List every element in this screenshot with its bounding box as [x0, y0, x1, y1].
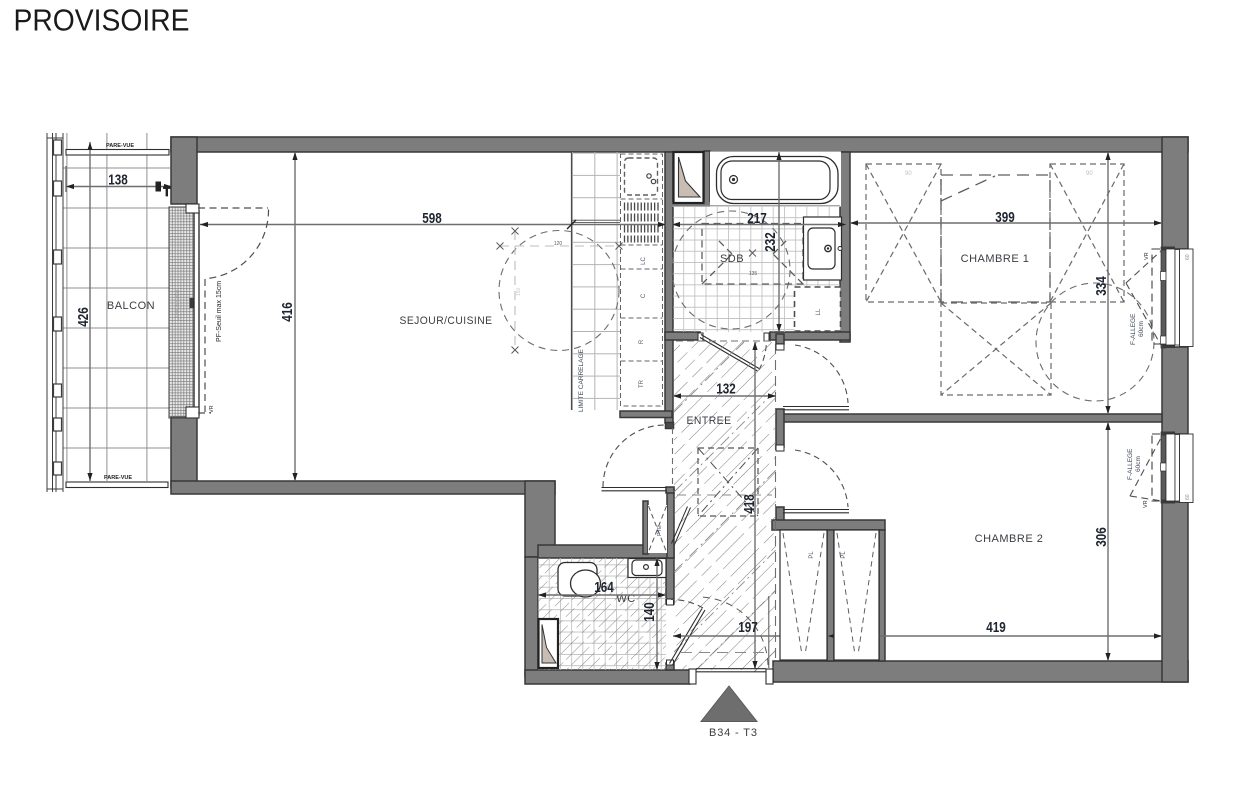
- svg-text:419: 419: [986, 620, 1006, 636]
- svg-text:SDB: SDB: [720, 253, 744, 265]
- svg-text:60: 60: [1185, 254, 1191, 260]
- svg-text:60cm: 60cm: [1138, 321, 1145, 337]
- svg-text:PARE-VUE: PARE-VUE: [106, 143, 134, 149]
- svg-text:90: 90: [1086, 171, 1093, 177]
- svg-text:C: C: [641, 293, 647, 298]
- svg-text:CHAMBRE 1: CHAMBRE 1: [961, 253, 1030, 265]
- svg-text:PL: PL: [841, 551, 847, 559]
- svg-text:PROVISOIRE: PROVISOIRE: [14, 3, 190, 38]
- svg-text:SEJOUR/CUISINE: SEJOUR/CUISINE: [400, 315, 493, 327]
- svg-text:120: 120: [554, 241, 563, 247]
- svg-text:164: 164: [594, 580, 614, 596]
- svg-text:F-ALLEGE: F-ALLEGE: [1130, 313, 1137, 345]
- svg-text:90: 90: [905, 171, 912, 177]
- svg-text:VR: VR: [1143, 500, 1149, 508]
- svg-text:R: R: [639, 339, 645, 344]
- svg-text:PF-Seuil max 15cm: PF-Seuil max 15cm: [216, 281, 223, 342]
- svg-text:416: 416: [280, 302, 296, 322]
- svg-text:150: 150: [516, 287, 522, 296]
- svg-text:306: 306: [1094, 527, 1110, 547]
- svg-text:60cm: 60cm: [1135, 456, 1142, 472]
- svg-text:132: 132: [716, 382, 736, 398]
- svg-text:140: 140: [642, 602, 658, 622]
- svg-text:VR: VR: [209, 405, 215, 413]
- svg-text:LC: LC: [641, 256, 647, 264]
- svg-text:PARE-VUE: PARE-VUE: [104, 475, 132, 481]
- svg-text:418: 418: [742, 494, 758, 514]
- svg-text:334: 334: [1094, 276, 1110, 296]
- svg-text:598: 598: [422, 211, 442, 227]
- svg-text:60: 60: [1185, 494, 1191, 500]
- svg-text:PTE: PTE: [657, 525, 663, 536]
- svg-text:BALCON: BALCON: [107, 300, 155, 312]
- svg-text:VR: VR: [1144, 252, 1150, 260]
- svg-text:LL: LL: [816, 308, 822, 315]
- svg-text:232: 232: [763, 232, 779, 252]
- svg-text:PL: PL: [809, 551, 815, 559]
- svg-text:217: 217: [747, 211, 767, 227]
- svg-text:TR: TR: [639, 379, 645, 388]
- svg-text:135: 135: [749, 271, 758, 277]
- svg-text:138: 138: [108, 173, 128, 189]
- svg-text:B34 - T3: B34 - T3: [709, 727, 757, 739]
- svg-text:399: 399: [995, 210, 1015, 226]
- svg-text:LIMITE CARRELAGE: LIMITE CARRELAGE: [578, 348, 585, 412]
- svg-text:COULISSANT: COULISSANT: [175, 289, 181, 321]
- svg-text:F-ALLEGE: F-ALLEGE: [1127, 448, 1134, 480]
- svg-text:197: 197: [738, 620, 758, 636]
- svg-text:CHAMBRE 2: CHAMBRE 2: [975, 533, 1044, 545]
- svg-text:ENTREE: ENTREE: [687, 415, 732, 427]
- svg-text:426: 426: [76, 307, 92, 327]
